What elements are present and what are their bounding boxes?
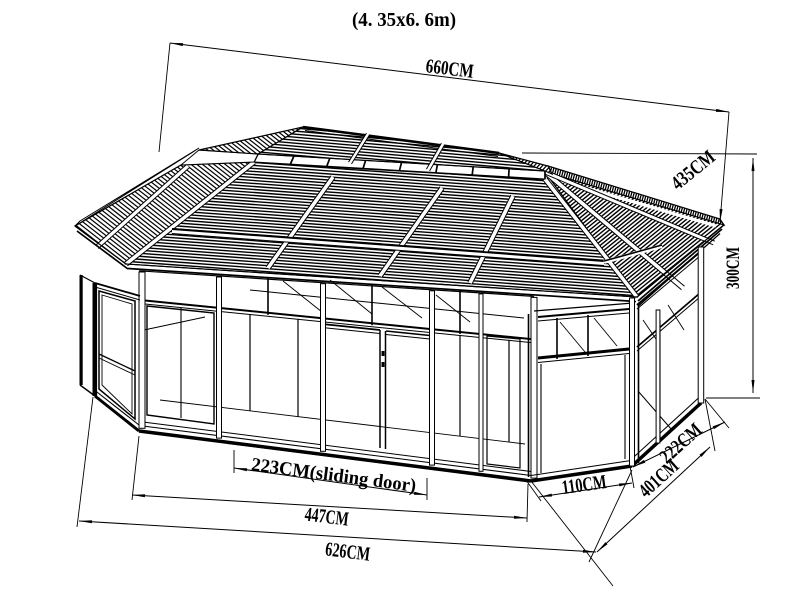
svg-text:(4. 35x6. 6m): (4. 35x6. 6m) — [352, 9, 456, 31]
svg-text:300CM: 300CM — [723, 247, 744, 289]
